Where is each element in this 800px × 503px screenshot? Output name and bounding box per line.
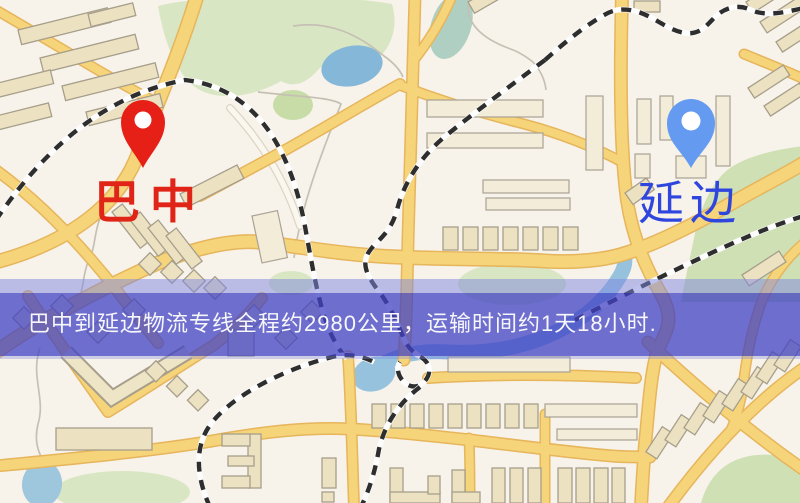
- origin-city-label: 巴中: [94, 180, 206, 226]
- map-canvas[interactable]: [0, 0, 800, 503]
- logistics-route-map[interactable]: 巴中 延边 巴中到延边物流专线全程约2980公里，运输时间约1天18小时.: [0, 0, 800, 503]
- destination-pin-hole: [682, 112, 701, 131]
- origin-pin-hole: [135, 112, 152, 129]
- route-info-text: 巴中到延边物流专线全程约2980公里，运输时间约1天18小时.: [0, 306, 657, 338]
- route-info-banner: 巴中到延边物流专线全程约2980公里，运输时间约1天18小时.: [0, 293, 800, 356]
- route-banner-bottom-edge: [0, 356, 800, 359]
- route-banner-top-edge: [0, 279, 800, 293]
- destination-city-label: 延边: [638, 181, 742, 227]
